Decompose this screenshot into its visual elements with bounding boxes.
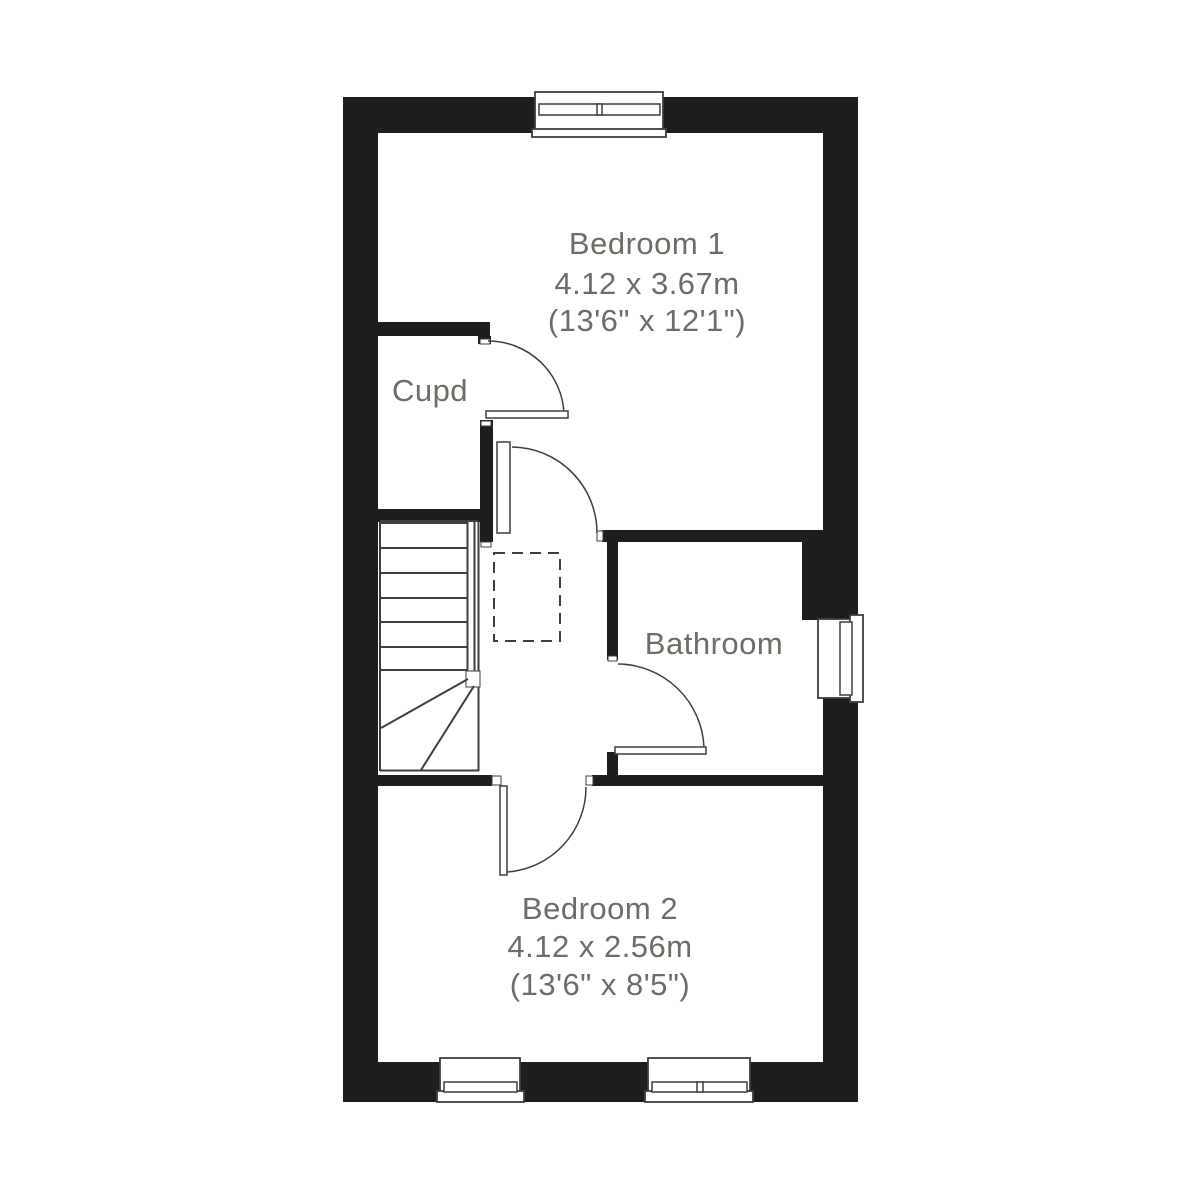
cupboard-door	[486, 341, 568, 418]
newel-post	[466, 671, 480, 687]
bathroom-door-leaf	[615, 747, 706, 754]
stair-handrail	[468, 521, 475, 672]
stair-treads	[380, 523, 467, 670]
bedroom1-door	[497, 442, 597, 533]
jamb-bedroom2-door-left	[492, 776, 501, 785]
window-east-glass	[840, 622, 852, 695]
window-bottom-right	[645, 1058, 753, 1102]
wall-left	[343, 97, 378, 1102]
jamb-cupboard-bottom	[481, 542, 491, 547]
window-bathroom-east	[818, 615, 863, 702]
jamb-bathroom-west-end	[608, 656, 617, 661]
wall-bottom-segment-3	[750, 1062, 858, 1102]
bathroom-west-wall-nub	[607, 752, 618, 775]
cupboard-door-arc	[488, 341, 564, 413]
floor-plan-page: Bedroom 1 4.12 x 3.67m (13'6" x 12'1") C…	[0, 0, 1200, 1200]
bedroom2-label: Bedroom 2	[522, 891, 678, 926]
jamb-cupboard-top	[481, 421, 491, 426]
bedroom1-imperial: (13'6" x 12'1")	[548, 303, 746, 338]
window-top-mullion	[597, 104, 602, 115]
wall-bottom-segment-1	[343, 1062, 440, 1102]
window-bottom-left-glass	[444, 1082, 517, 1092]
bedroom1-door-leaf	[497, 442, 510, 533]
bedroom2-door-arc	[507, 787, 586, 872]
wall-bottom-segment-2	[520, 1062, 648, 1102]
east-wall-thick-section	[802, 542, 823, 620]
jamb-bedroom2-door-right	[586, 776, 593, 785]
cupboard-north-wall	[378, 322, 490, 336]
bedroom2-imperial: (13'6" x 8'5")	[510, 967, 690, 1002]
jamb-bathroom-wall-end	[597, 531, 603, 541]
stair-winders	[381, 679, 474, 770]
window-bottom-left	[437, 1058, 524, 1102]
bedroom1-metric: 4.12 x 3.67m	[554, 266, 739, 301]
bedroom2-door-leaf	[500, 786, 507, 875]
floor-plan: Bedroom 1 4.12 x 3.67m (13'6" x 12'1") C…	[0, 0, 1200, 1200]
cupboard-label: Cupd	[392, 373, 468, 408]
bedroom2-metric: 4.12 x 2.56m	[507, 929, 692, 964]
bedroom2-north-wall-west	[378, 775, 492, 786]
bathroom-door	[615, 664, 706, 754]
bedroom2-north-wall-east	[592, 775, 858, 786]
room-labels: Bedroom 1 4.12 x 3.67m (13'6" x 12'1") C…	[392, 226, 783, 1002]
bathroom-north-wall	[602, 530, 823, 542]
bathroom-door-arc	[618, 664, 704, 747]
window-bottom-right-mullion	[697, 1082, 703, 1092]
bathroom-label: Bathroom	[645, 626, 783, 661]
cupboard-east-wall	[480, 420, 493, 542]
wall-right-upper	[823, 97, 858, 620]
door-jambs	[480, 339, 617, 785]
dashed-outline-box	[494, 553, 560, 641]
window-top	[532, 92, 666, 137]
window-top-sill	[532, 129, 666, 137]
bedroom1-label: Bedroom 1	[569, 226, 725, 261]
bathroom-west-wall	[607, 542, 618, 660]
cupboard-door-leaf	[486, 411, 568, 418]
bedroom2-door	[500, 786, 586, 875]
stairs	[380, 521, 480, 771]
bedroom1-door-arc	[512, 447, 597, 533]
wall-right-lower	[823, 697, 858, 1102]
